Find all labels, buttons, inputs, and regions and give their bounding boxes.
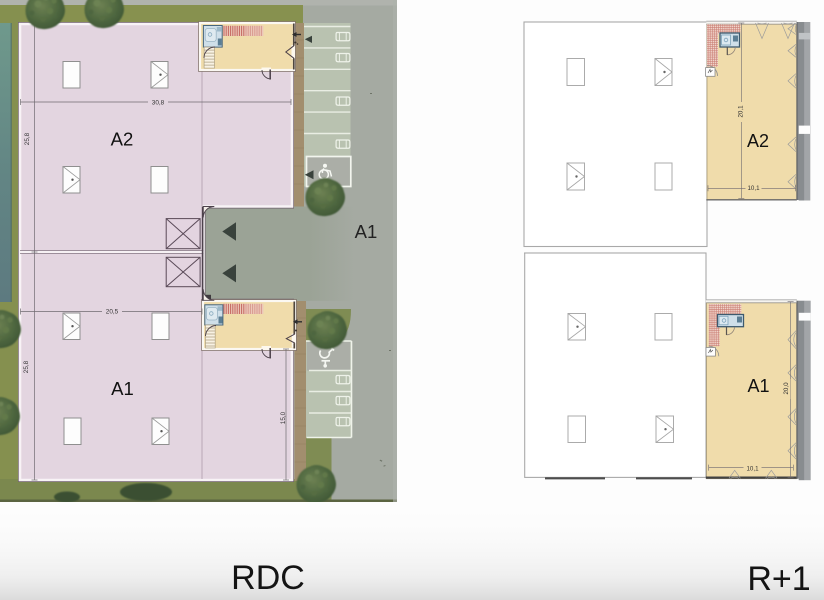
svg-text:20,1: 20,1 <box>738 105 745 118</box>
svg-text:RDC: RDC <box>231 559 305 597</box>
svg-text:A1: A1 <box>355 221 378 242</box>
svg-text:15,0: 15,0 <box>280 411 287 424</box>
svg-text:R+1: R+1 <box>747 560 810 598</box>
svg-text:30,8: 30,8 <box>152 100 165 107</box>
svg-text:25,8: 25,8 <box>24 132 31 145</box>
svg-text:25,8: 25,8 <box>23 360 30 373</box>
svg-text:20,0: 20,0 <box>783 382 790 395</box>
svg-text:A2: A2 <box>747 131 769 151</box>
svg-text:10,1: 10,1 <box>747 185 760 192</box>
svg-text:A1: A1 <box>747 376 769 396</box>
svg-text:20,5: 20,5 <box>106 309 119 316</box>
svg-text:A2: A2 <box>111 129 134 150</box>
svg-text:A1: A1 <box>111 378 134 399</box>
svg-text:10,1: 10,1 <box>746 466 759 473</box>
